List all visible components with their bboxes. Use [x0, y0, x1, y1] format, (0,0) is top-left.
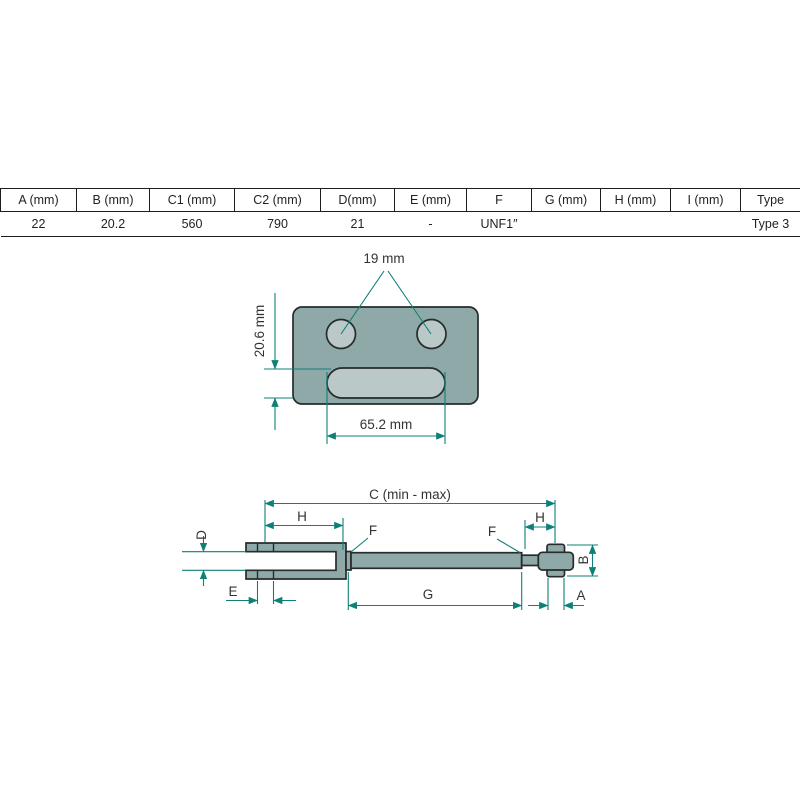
- thread-label-right: F: [488, 524, 496, 539]
- link-drawing: C (min - max) H H D: [182, 487, 598, 610]
- fork-length-label: H: [297, 509, 307, 524]
- ball-height-label: B: [576, 555, 591, 564]
- hole-diameter-label: 19 mm: [363, 251, 404, 266]
- fork-gap-label: D: [194, 530, 209, 540]
- technical-drawing: 19 mm 20.6 mm 65.2 mm: [0, 0, 800, 800]
- ball-end-length-label: H: [535, 510, 545, 525]
- dim-tube-length: G: [348, 572, 521, 610]
- dim-overall-length: C (min - max): [265, 487, 555, 543]
- thread-callout-left: F: [351, 523, 377, 552]
- rod: [351, 553, 522, 569]
- thread-label-left: F: [369, 523, 377, 538]
- ball-eye: [538, 552, 573, 570]
- slot: [327, 368, 445, 398]
- thread-callout-right: F: [488, 524, 520, 553]
- dim-pin-hole: E: [226, 581, 296, 604]
- fork: [246, 543, 346, 579]
- hole-right: [417, 320, 446, 349]
- slot-length-label: 65.2 mm: [360, 417, 413, 432]
- dim-ball-width: A: [528, 578, 586, 610]
- dim-fork-gap: D: [182, 530, 245, 586]
- overall-length-label: C (min - max): [369, 487, 451, 502]
- tube-length-label: G: [423, 587, 434, 602]
- slot-height-label: 20.6 mm: [252, 305, 267, 358]
- pin-hole-label: E: [228, 584, 237, 599]
- thread-stub-right: [522, 555, 539, 565]
- dim-ball-end-length: H: [525, 510, 555, 549]
- page: A (mm) B (mm) C1 (mm) C2 (mm) D(mm) E (m…: [0, 0, 800, 800]
- plate-drawing: 19 mm 20.6 mm 65.2 mm: [252, 251, 478, 444]
- ball-width-label: A: [576, 588, 585, 603]
